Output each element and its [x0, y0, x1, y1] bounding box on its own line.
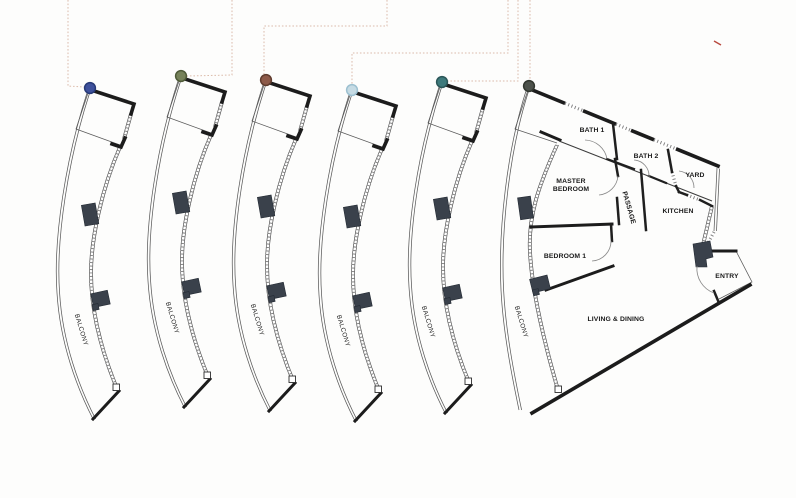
unit-marker-1	[85, 83, 96, 94]
leader-line-unit-4	[352, 0, 508, 84]
unit-marker-2	[176, 71, 187, 82]
unit-marker-6	[524, 81, 535, 92]
room-label-master-bedroom: MASTER BEDROOM	[548, 178, 594, 194]
unit-plan-4	[318, 92, 396, 421]
unit-6-walls	[530, 89, 750, 413]
room-label-bath-1: BATH 1	[580, 127, 605, 135]
unit-6-balcony-edge	[500, 91, 528, 410]
room-label-entry: ENTRY	[715, 273, 738, 281]
unit-plan-3	[232, 82, 310, 411]
unit-marker-4	[347, 85, 358, 96]
unit-marker-5	[437, 77, 448, 88]
leader-line-unit-5	[448, 0, 518, 81]
leader-line-unit-3	[264, 0, 387, 74]
unit-plan-5	[408, 84, 486, 413]
red-scan-mark	[714, 41, 721, 45]
room-label-living-dining: LIVING & DINING	[588, 316, 645, 324]
leader-line-unit-2	[187, 0, 232, 76]
room-label-kitchen: KITCHEN	[662, 208, 693, 216]
room-label-yard: YARD	[685, 172, 704, 180]
leader-line-unit-1	[68, 0, 84, 87]
unit-plan-2	[147, 78, 225, 407]
plan-canvas	[0, 0, 796, 498]
room-label-bath-2: BATH 2	[634, 153, 659, 161]
unit-marker-3	[261, 75, 272, 86]
room-label-bedroom-1: BEDROOM 1	[544, 253, 586, 261]
marker-leader-lines	[68, 0, 530, 87]
unit-plan-1	[56, 90, 134, 419]
unit-plan-6-detailed	[500, 89, 752, 413]
balcony-corner-detail	[555, 386, 562, 393]
floor-plate-plan: BALCONY BALCONY BALCONY BALCONY BALCONY …	[0, 0, 796, 498]
